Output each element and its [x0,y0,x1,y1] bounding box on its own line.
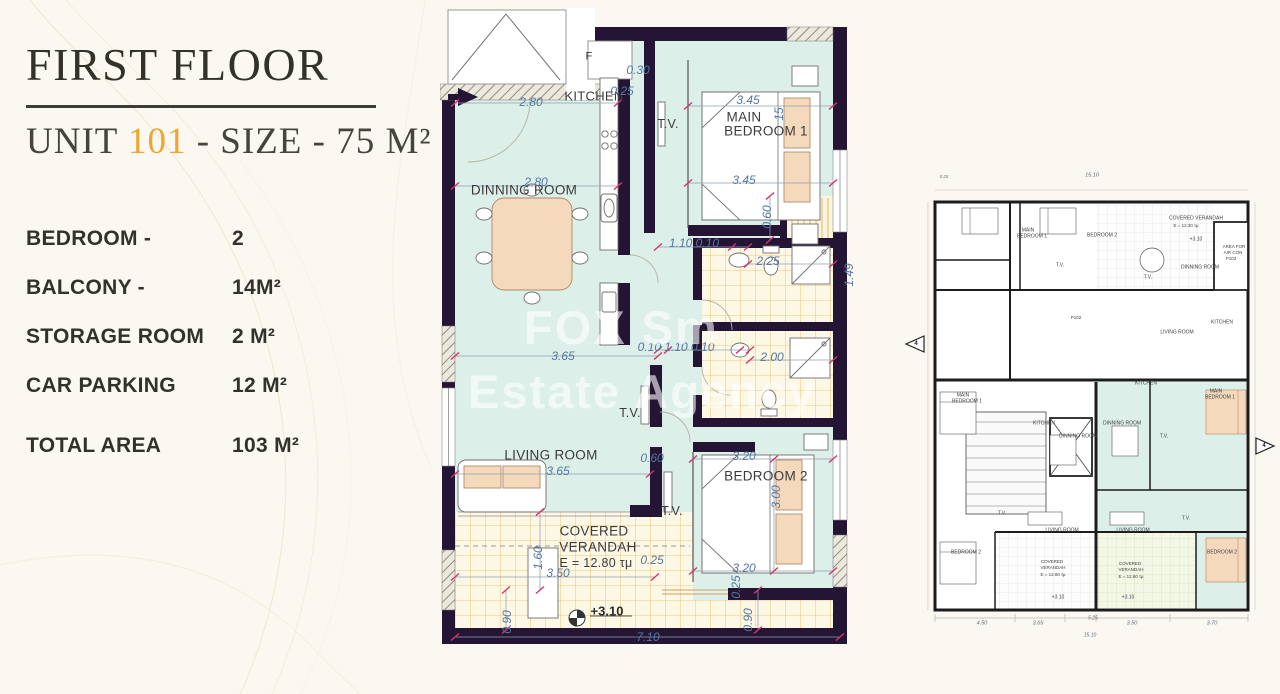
tv-unit-living [641,386,649,424]
spec-list: BEDROOM -2BALCONY -14M²STORAGE ROOM2 M²C… [26,227,426,458]
spec-label: STORAGE ROOM [26,325,232,349]
title-divider [26,105,376,109]
kitchen-counter [600,78,618,345]
page-title: FIRST FLOOR [26,40,426,91]
spec-value: 14M² [232,276,281,300]
tv-unit-bedroom1 [658,102,665,146]
spec-value: 2 M² [232,325,275,349]
tv-unit-bedroom2 [664,472,672,512]
spec-row: STORAGE ROOM2 M² [26,325,426,349]
spec-row: BALCONY -14M² [26,276,426,300]
spec-label: BALCONY - [26,276,232,300]
main-bed [702,66,820,244]
spec-row: CAR PARKING12 M² [26,374,426,398]
unit-suffix: - SIZE - 75 M² [186,121,431,162]
sofa [458,460,546,512]
overview-floor-plan-drawing [900,160,1280,694]
spec-label: TOTAL AREA [26,434,232,458]
spec-label: BEDROOM - [26,227,232,251]
spec-label: CAR PARKING [26,374,232,398]
bed-2 [702,434,828,573]
unit-size-line: UNIT 101 - SIZE - 75 M² [26,120,426,163]
floorplan-sheet: FIRST FLOOR UNIT 101 - SIZE - 75 M² BEDR… [0,0,1280,694]
spec-value: 103 M² [232,434,299,458]
spec-row: BEDROOM -2 [26,227,426,251]
spec-row: TOTAL AREA103 M² [26,434,426,458]
fridge-box [588,41,632,79]
verandah-cabinet [528,548,558,618]
spec-value: 12 M² [232,374,287,398]
spec-value: 2 [232,227,244,251]
unit-number: 101 [128,121,187,162]
unit-prefix: UNIT [26,121,128,162]
unit-floor-plan-drawing [440,0,860,694]
info-panel: FIRST FLOOR UNIT 101 - SIZE - 75 M² BEDR… [26,40,426,483]
